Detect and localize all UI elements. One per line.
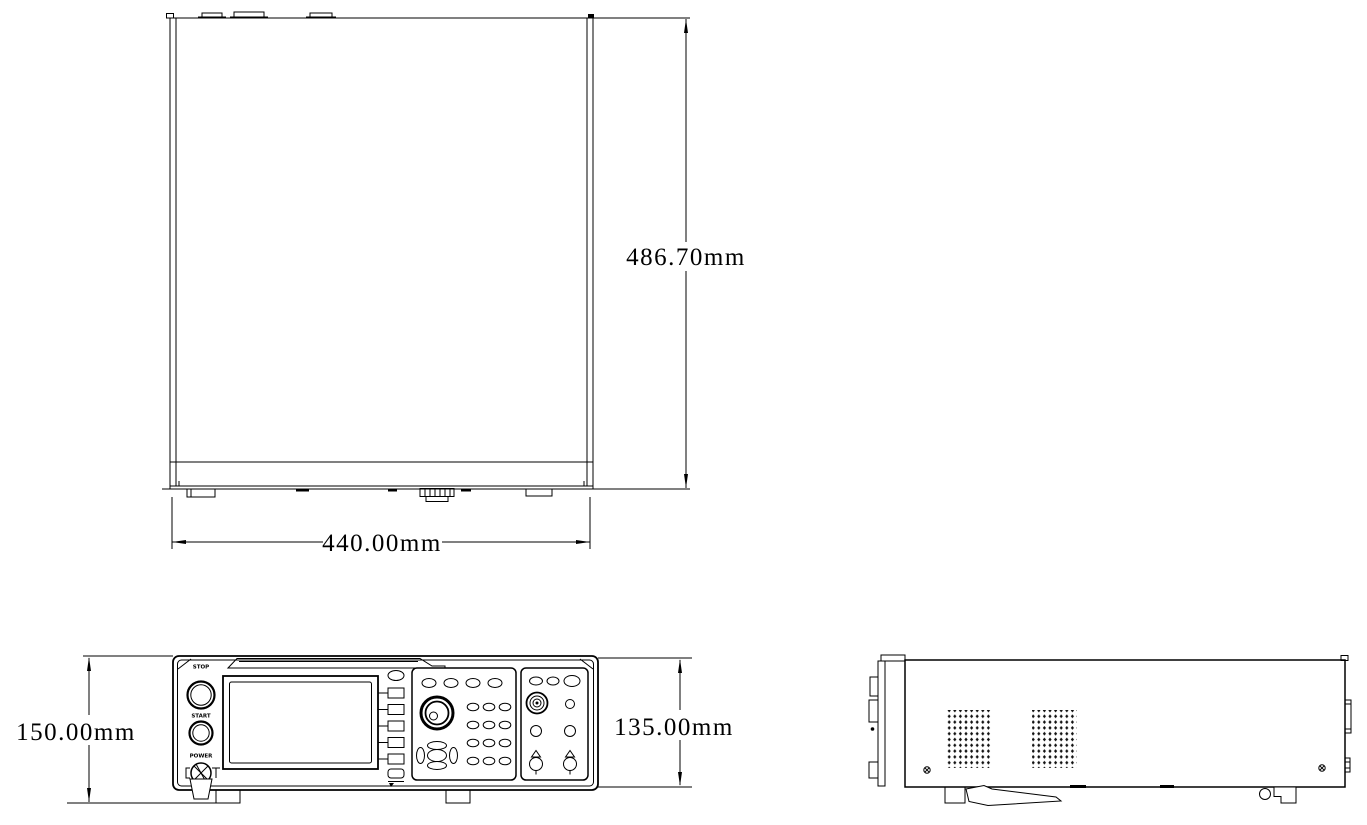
side-view	[869, 655, 1351, 806]
tilt-stand-bail	[966, 786, 1061, 806]
indicator-lamp	[566, 700, 575, 709]
round-terminal-right	[565, 726, 576, 737]
softkey-1	[388, 688, 404, 698]
top-view-rear-tabs	[198, 12, 336, 18]
terminal-panel	[521, 668, 588, 780]
dimension-top-view-width: 440.00mm	[172, 497, 590, 557]
numeric-key-grid	[467, 703, 511, 765]
top-view-center-connector	[420, 489, 454, 502]
side-front-bezel	[878, 661, 885, 786]
rear-bracket-profile	[1345, 700, 1351, 733]
display-screen	[223, 676, 378, 769]
power-switch-label: POWER	[190, 754, 214, 760]
instrument-dimension-drawing: 486.70mm 440.00mm STOP	[0, 0, 1367, 825]
side-rear-connectors	[1345, 700, 1351, 772]
start-knob-profile	[869, 700, 878, 722]
stop-button: STOP	[188, 665, 215, 709]
top-view: 486.70mm 440.00mm	[162, 12, 746, 557]
dim-label-top-height: 486.70mm	[626, 244, 746, 271]
function-keypad	[412, 668, 516, 780]
front-foot-left	[216, 790, 240, 803]
keypad-top-key-2	[444, 679, 458, 688]
top-left-corner-tab	[167, 14, 174, 19]
dim-label-front-height: 150.00mm	[16, 719, 136, 746]
dimension-front-body-height: 135.00mm	[598, 658, 737, 787]
start-button-label: START	[191, 714, 211, 720]
side-rear-foot-roller	[1260, 789, 1271, 800]
dim-label-top-width: 440.00mm	[322, 530, 442, 557]
front-feet	[216, 790, 470, 803]
power-switch-guard	[190, 779, 212, 799]
round-terminal-left	[531, 726, 542, 737]
keypad-top-key-1	[422, 679, 436, 688]
softkey-4	[388, 738, 404, 748]
side-top-tab	[881, 655, 905, 661]
arrow-center-key	[428, 750, 447, 762]
power-off-mark	[186, 768, 190, 778]
arrow-down-key	[428, 762, 447, 770]
dim-label-front-body-height: 135.00mm	[614, 714, 734, 741]
power-on-mark	[212, 768, 220, 778]
stop-button-label: STOP	[193, 665, 209, 671]
keypad-top-key-3	[466, 679, 480, 688]
softkey-top-oval	[388, 671, 404, 681]
technical-drawing-canvas: 486.70mm 440.00mm STOP	[0, 0, 1367, 825]
top-view-body-outline	[167, 14, 691, 490]
front-view: STOP START POWER	[9, 656, 737, 803]
bnc-connector	[527, 693, 548, 714]
side-rear-foot	[1274, 787, 1296, 803]
side-front-foot	[945, 787, 965, 803]
top-view-front-details	[187, 489, 552, 502]
softkey-2	[388, 705, 404, 715]
vent-grille-right	[1032, 710, 1077, 768]
rotary-knob	[421, 697, 453, 729]
side-screw-rear	[1319, 765, 1325, 771]
banana-jack-right	[564, 751, 577, 775]
arrow-up-key	[428, 742, 447, 750]
terminal-key-2	[547, 677, 559, 685]
softkey-column	[378, 671, 404, 788]
front-foot-right	[446, 790, 470, 803]
power-switch: POWER	[186, 754, 220, 800]
keypad-top-key-4	[488, 679, 502, 688]
arrow-pad	[417, 742, 458, 770]
softkey-5	[388, 754, 404, 764]
start-button: START	[190, 714, 213, 745]
banana-jack-left	[530, 751, 543, 775]
terminal-key-1	[530, 677, 543, 685]
side-feet	[945, 785, 1296, 806]
top-view-right-foot	[526, 489, 552, 496]
softkey-bottom-key	[388, 769, 404, 778]
stop-knob-profile	[870, 677, 878, 696]
arrow-left-key	[417, 748, 425, 764]
side-front-knob-profiles	[869, 677, 878, 778]
dimension-top-view-height: 486.70mm	[626, 19, 746, 488]
softkey-3	[388, 721, 404, 731]
top-right-corner-tab	[588, 14, 594, 18]
side-screw-front	[924, 767, 930, 773]
top-view-front-band	[162, 462, 690, 489]
power-switch-profile	[869, 762, 878, 778]
arrow-right-key	[450, 748, 458, 764]
terminal-key-3	[564, 676, 580, 687]
vent-grille-left	[947, 710, 992, 768]
